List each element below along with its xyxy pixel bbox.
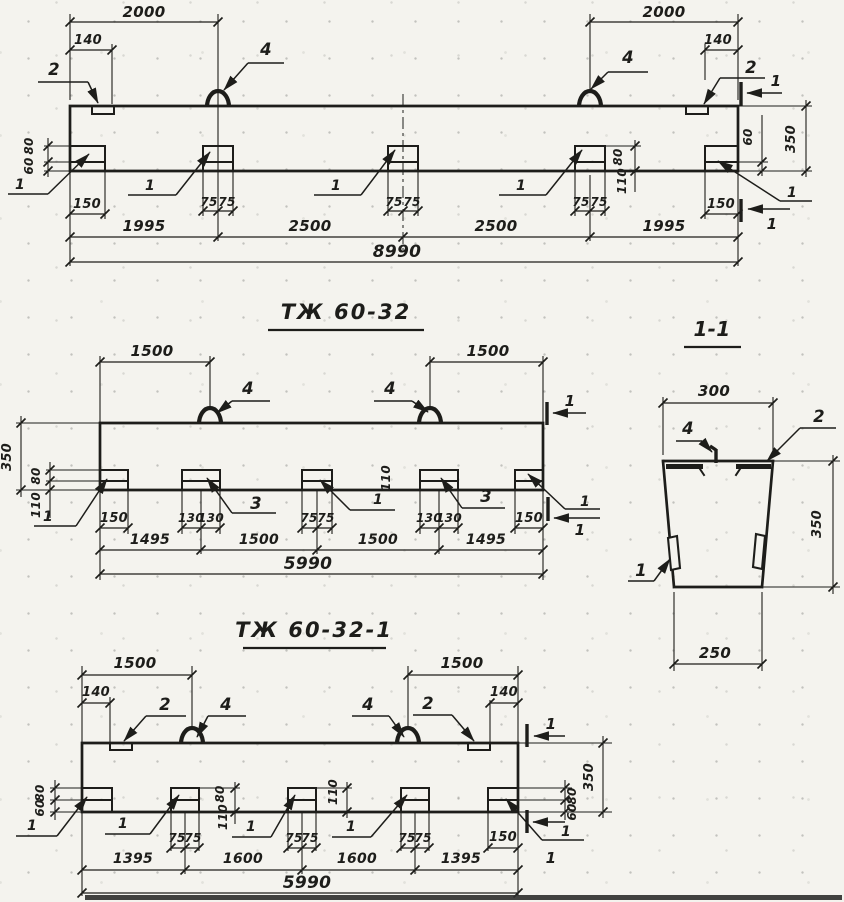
dim-75: 75 (200, 195, 217, 209)
dim-75: 75 (285, 831, 302, 845)
dim-110-block: 110 (326, 779, 340, 805)
dim-1495: 1495 (130, 532, 170, 548)
dim-140-left: 140 (74, 33, 102, 48)
callout-3: 3 (480, 487, 492, 506)
dim-75: 75 (590, 195, 607, 209)
embedded-plate-top-left (666, 464, 703, 469)
dim-75: 75 (300, 511, 317, 525)
callout-1: 1 (787, 185, 797, 201)
section-cut-marks (547, 402, 600, 521)
bearing-blocks (100, 470, 543, 490)
beam-outline (100, 423, 543, 490)
dim-80-block: 80 (611, 148, 625, 165)
lifting-loops (181, 728, 419, 744)
beam-outline (82, 743, 518, 812)
dim-60-left: 60 (22, 157, 36, 174)
dim-250: 250 (699, 644, 731, 662)
callout-1: 1 (580, 494, 590, 510)
callout-4: 4 (219, 695, 232, 714)
dim-140: 140 (82, 685, 110, 700)
section-mark-1: 1 (565, 392, 576, 410)
dim-75: 75 (168, 831, 185, 845)
dim-150-left: 150 (73, 197, 101, 212)
scan-edge-band (85, 895, 842, 900)
callout-2: 2 (159, 695, 171, 714)
section-mark-1: 1 (767, 215, 778, 233)
dim-2500: 2500 (289, 217, 332, 235)
callout-4: 4 (361, 695, 374, 714)
view-title: ТЖ 60-32-1 (235, 618, 393, 642)
dim-2000-right: 2000 (643, 3, 686, 21)
dim-110: 110 (379, 465, 393, 491)
dim-75: 75 (218, 195, 235, 209)
dim-80-left: 80 (33, 784, 47, 801)
view-top-elevation: 2000 2000 140 140 80 60 60 350 80 110 15… (8, 3, 812, 267)
dim-1395: 1395 (441, 851, 481, 867)
dim-110-block: 110 (216, 804, 230, 830)
callout-3: 3 (250, 494, 262, 513)
dim-60-right: 60 (565, 803, 579, 820)
lifting-loops (199, 408, 441, 424)
dim-2000-left: 2000 (123, 3, 166, 21)
dim-75: 75 (403, 195, 420, 209)
callout-1: 1 (118, 816, 128, 832)
lifting-loops (207, 91, 601, 107)
callout-2: 2 (422, 694, 434, 713)
callout-4: 4 (621, 48, 634, 67)
callout-1: 1 (516, 178, 526, 194)
dim-1495: 1495 (466, 532, 506, 548)
callout-4: 4 (681, 419, 694, 438)
dim-8990-total: 8990 (373, 242, 422, 262)
leader-lines (16, 715, 584, 840)
section-title: 1-1 (693, 317, 730, 341)
dim-110-block: 110 (615, 168, 629, 194)
wall-plate-left (668, 536, 680, 570)
dim-150-right: 150 (707, 197, 735, 212)
extension-lines (16, 356, 543, 580)
section-cut-marks (527, 724, 565, 833)
callout-2: 2 (813, 407, 825, 426)
dim-80-right: 80 (565, 787, 579, 804)
section-mark-1: 1 (546, 715, 557, 733)
bearing-blocks (82, 788, 518, 812)
callout-2: 2 (745, 58, 757, 77)
dim-1500: 1500 (239, 532, 279, 548)
dim-350-right: 350 (582, 763, 597, 791)
callout-1: 1 (145, 178, 155, 194)
dim-150: 150 (100, 511, 128, 526)
dim-1395: 1395 (113, 851, 153, 867)
dim-1995: 1995 (123, 217, 166, 235)
dim-1500: 1500 (114, 654, 157, 672)
section-mark-1: 1 (771, 72, 782, 90)
callout-4: 4 (383, 379, 396, 398)
dim-5990-total: 5990 (284, 554, 333, 574)
callout-1: 1 (373, 492, 383, 508)
embedded-plates (92, 107, 708, 114)
drawing-sheet: 2000 2000 140 140 80 60 60 350 80 110 15… (0, 0, 844, 902)
dim-75: 75 (572, 195, 589, 209)
leader-lines (628, 428, 836, 581)
dim-350: 350 (810, 510, 825, 538)
callout-1: 1 (635, 561, 647, 580)
leader-lines (8, 63, 812, 201)
dim-75: 75 (414, 831, 431, 845)
dim-350-right: 350 (784, 125, 799, 153)
dim-80: 80 (29, 467, 43, 484)
dim-75: 75 (184, 831, 201, 845)
dim-110: 110 (29, 492, 43, 518)
dim-140: 140 (490, 685, 518, 700)
callout-2: 2 (48, 60, 60, 79)
callout-1: 1 (346, 819, 356, 835)
callout-1: 1 (27, 818, 37, 834)
dim-1500: 1500 (441, 654, 484, 672)
dim-1500: 1500 (467, 342, 510, 360)
dim-75: 75 (385, 195, 402, 209)
dim-75: 75 (317, 511, 334, 525)
view-bottom-elevation: ТЖ 60-32-1 (16, 618, 612, 898)
dim-130: 130 (436, 511, 462, 525)
embedded-plate-top-right (736, 464, 771, 469)
plate-anchors (700, 469, 740, 475)
dim-1600: 1600 (223, 851, 263, 867)
dim-130: 130 (198, 511, 224, 525)
dim-75: 75 (398, 831, 415, 845)
section-view-1-1: 1-1 300 350 250 4 2 1 (628, 317, 840, 671)
callout-4: 4 (259, 40, 272, 59)
wall-plate-right (753, 534, 765, 569)
dim-140-right: 140 (704, 33, 732, 48)
technical-drawing: 2000 2000 140 140 80 60 60 350 80 110 15… (0, 0, 844, 902)
callout-1: 1 (561, 824, 571, 840)
dim-150: 150 (489, 830, 517, 845)
callout-1: 1 (15, 177, 25, 193)
dim-300: 300 (698, 382, 730, 400)
callout-4: 4 (241, 379, 254, 398)
callout-1: 1 (246, 819, 256, 835)
dim-60-left: 60 (33, 799, 47, 816)
dim-60-right: 60 (741, 128, 755, 145)
dim-350-left: 350 (0, 443, 15, 471)
dim-2500: 2500 (475, 217, 518, 235)
dim-1995: 1995 (643, 217, 686, 235)
dim-80-block: 80 (213, 785, 227, 802)
dim-75: 75 (301, 831, 318, 845)
dim-80-left: 80 (22, 137, 36, 154)
dim-1600: 1600 (337, 851, 377, 867)
dim-1500: 1500 (358, 532, 398, 548)
view-title: ТЖ 60-32 (281, 300, 412, 324)
section-mark-1: 1 (546, 849, 557, 867)
section-mark-1: 1 (575, 521, 586, 539)
dim-5990-total: 5990 (283, 873, 332, 893)
view-middle-elevation: ТЖ 60-32 (0, 300, 600, 580)
callout-1: 1 (43, 509, 53, 525)
dim-1500: 1500 (131, 342, 174, 360)
dim-150: 150 (515, 511, 543, 526)
callout-1: 1 (331, 178, 341, 194)
